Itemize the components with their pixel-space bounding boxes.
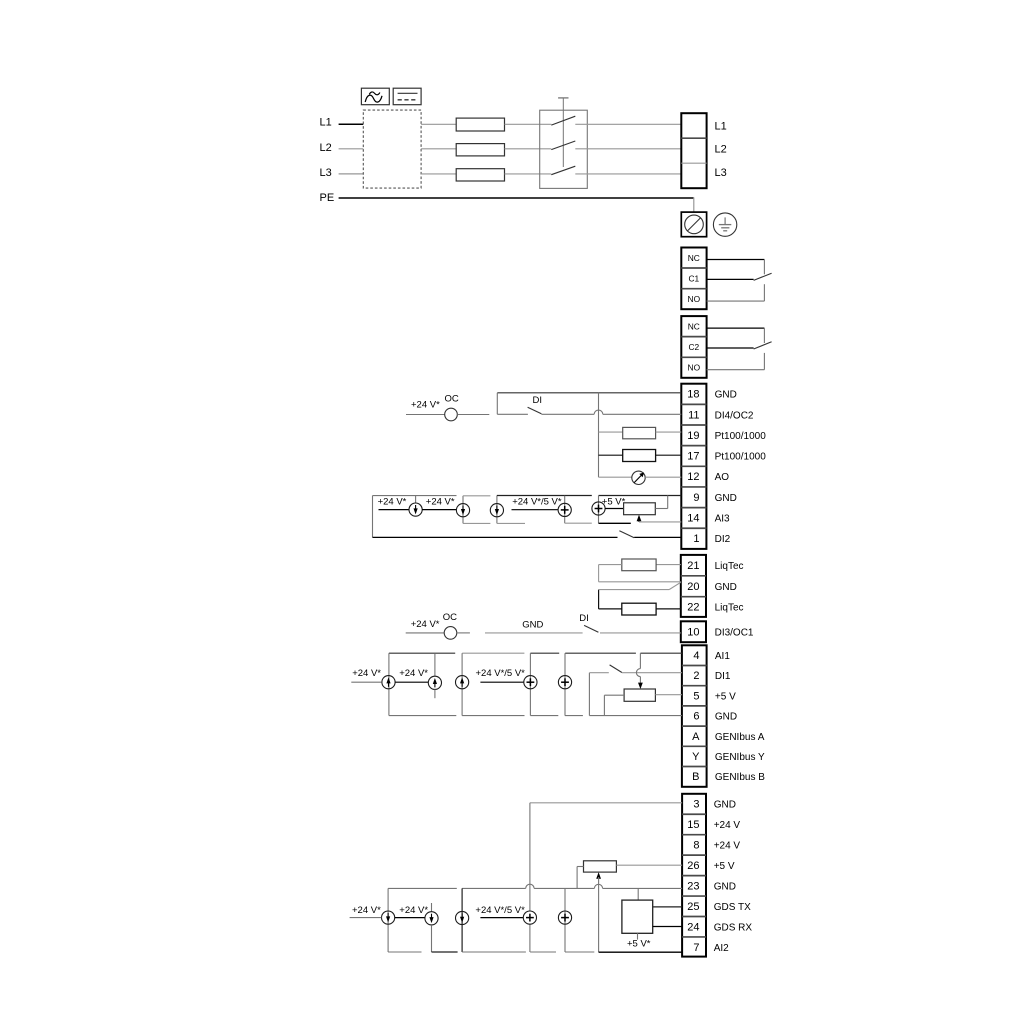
svg-text:11: 11 xyxy=(688,409,699,421)
svg-text:DI3/OC1: DI3/OC1 xyxy=(715,627,754,638)
svg-text:17: 17 xyxy=(687,451,699,463)
svg-text:NO: NO xyxy=(688,294,701,304)
svg-text:26: 26 xyxy=(687,860,699,872)
svg-text:GND: GND xyxy=(715,493,737,504)
svg-text:GND: GND xyxy=(714,881,736,892)
svg-text:AO: AO xyxy=(715,472,730,483)
svg-text:L1: L1 xyxy=(715,120,727,132)
svg-text:GND: GND xyxy=(522,620,543,631)
svg-text:22: 22 xyxy=(687,601,699,613)
svg-text:+24 V*/5 V*: +24 V*/5 V* xyxy=(512,496,562,507)
svg-text:DI1: DI1 xyxy=(715,671,731,682)
svg-text:10: 10 xyxy=(687,627,699,639)
svg-text:+24 V*/5 V*: +24 V*/5 V* xyxy=(476,668,526,679)
svg-text:6: 6 xyxy=(693,711,699,723)
svg-text:A: A xyxy=(692,731,700,743)
svg-text:GDS RX: GDS RX xyxy=(714,922,753,933)
svg-text:LiqTec: LiqTec xyxy=(715,602,744,613)
svg-text:GENIbus A: GENIbus A xyxy=(715,732,765,743)
svg-text:24: 24 xyxy=(687,921,699,933)
svg-text:15: 15 xyxy=(687,819,699,831)
svg-text:+5 V: +5 V xyxy=(715,691,736,702)
svg-text:Pt100/1000: Pt100/1000 xyxy=(715,431,767,442)
svg-text:DI2: DI2 xyxy=(715,534,731,545)
svg-text:+24 V*: +24 V* xyxy=(352,668,381,679)
svg-text:L2: L2 xyxy=(320,142,332,154)
svg-text:1: 1 xyxy=(693,533,699,545)
svg-text:GND: GND xyxy=(714,800,736,811)
svg-text:4: 4 xyxy=(693,650,699,662)
svg-text:Pt100/1000: Pt100/1000 xyxy=(715,452,767,463)
svg-text:LiqTec: LiqTec xyxy=(715,561,744,572)
svg-text:9: 9 xyxy=(693,492,699,504)
svg-text:OC: OC xyxy=(443,612,457,623)
svg-text:25: 25 xyxy=(687,901,699,913)
svg-text:+24 V*: +24 V* xyxy=(378,496,407,507)
svg-text:NO: NO xyxy=(688,363,701,373)
svg-text:L2: L2 xyxy=(715,143,727,155)
svg-text:19: 19 xyxy=(687,430,699,442)
svg-text:GND: GND xyxy=(715,390,737,401)
svg-text:B: B xyxy=(692,771,699,783)
svg-text:21: 21 xyxy=(687,560,699,572)
svg-text:Y: Y xyxy=(692,751,700,763)
svg-text:NC: NC xyxy=(688,321,700,331)
svg-text:GND: GND xyxy=(715,712,737,723)
svg-text:DI: DI xyxy=(533,395,543,406)
svg-text:AI3: AI3 xyxy=(715,514,730,525)
svg-text:DI: DI xyxy=(579,613,589,624)
svg-text:+24 V*: +24 V* xyxy=(411,619,440,630)
svg-text:7: 7 xyxy=(693,942,699,954)
svg-text:PE: PE xyxy=(320,192,335,204)
svg-text:+24 V*: +24 V* xyxy=(426,496,455,507)
svg-text:12: 12 xyxy=(687,471,699,483)
svg-text:AI2: AI2 xyxy=(714,943,729,954)
svg-text:GENIbus B: GENIbus B xyxy=(715,772,765,783)
svg-text:L1: L1 xyxy=(320,117,332,129)
svg-text:DI4/OC2: DI4/OC2 xyxy=(715,410,754,421)
svg-text:+24 V*: +24 V* xyxy=(399,668,428,679)
svg-text:AI1: AI1 xyxy=(715,651,730,662)
svg-text:+24 V*: +24 V* xyxy=(411,399,440,410)
svg-text:+24 V*: +24 V* xyxy=(352,905,381,916)
svg-text:+24 V*: +24 V* xyxy=(399,905,428,916)
svg-text:+5 V*: +5 V* xyxy=(602,497,626,508)
svg-text:L3: L3 xyxy=(715,167,727,179)
svg-text:+24 V: +24 V xyxy=(714,820,741,831)
svg-text:3: 3 xyxy=(693,799,699,811)
svg-text:+5 V*: +5 V* xyxy=(627,938,651,949)
svg-text:GDS TX: GDS TX xyxy=(714,902,751,913)
svg-text:23: 23 xyxy=(687,880,699,892)
svg-text:8: 8 xyxy=(693,840,699,852)
svg-text:OC: OC xyxy=(445,393,459,404)
svg-text:L3: L3 xyxy=(320,167,332,179)
svg-text:20: 20 xyxy=(687,581,699,593)
svg-text:2: 2 xyxy=(693,670,699,682)
svg-text:GND: GND xyxy=(715,582,737,593)
svg-text:+24 V: +24 V xyxy=(714,841,741,852)
svg-text:+24 V*/5 V*: +24 V*/5 V* xyxy=(475,905,525,916)
svg-text:18: 18 xyxy=(687,389,699,401)
svg-text:5: 5 xyxy=(693,690,699,702)
svg-text:NC: NC xyxy=(688,253,700,263)
svg-text:14: 14 xyxy=(687,513,699,525)
svg-text:+5 V: +5 V xyxy=(714,861,735,872)
svg-text:C2: C2 xyxy=(688,342,699,352)
svg-text:GENIbus Y: GENIbus Y xyxy=(715,752,765,763)
svg-text:C1: C1 xyxy=(688,273,699,283)
